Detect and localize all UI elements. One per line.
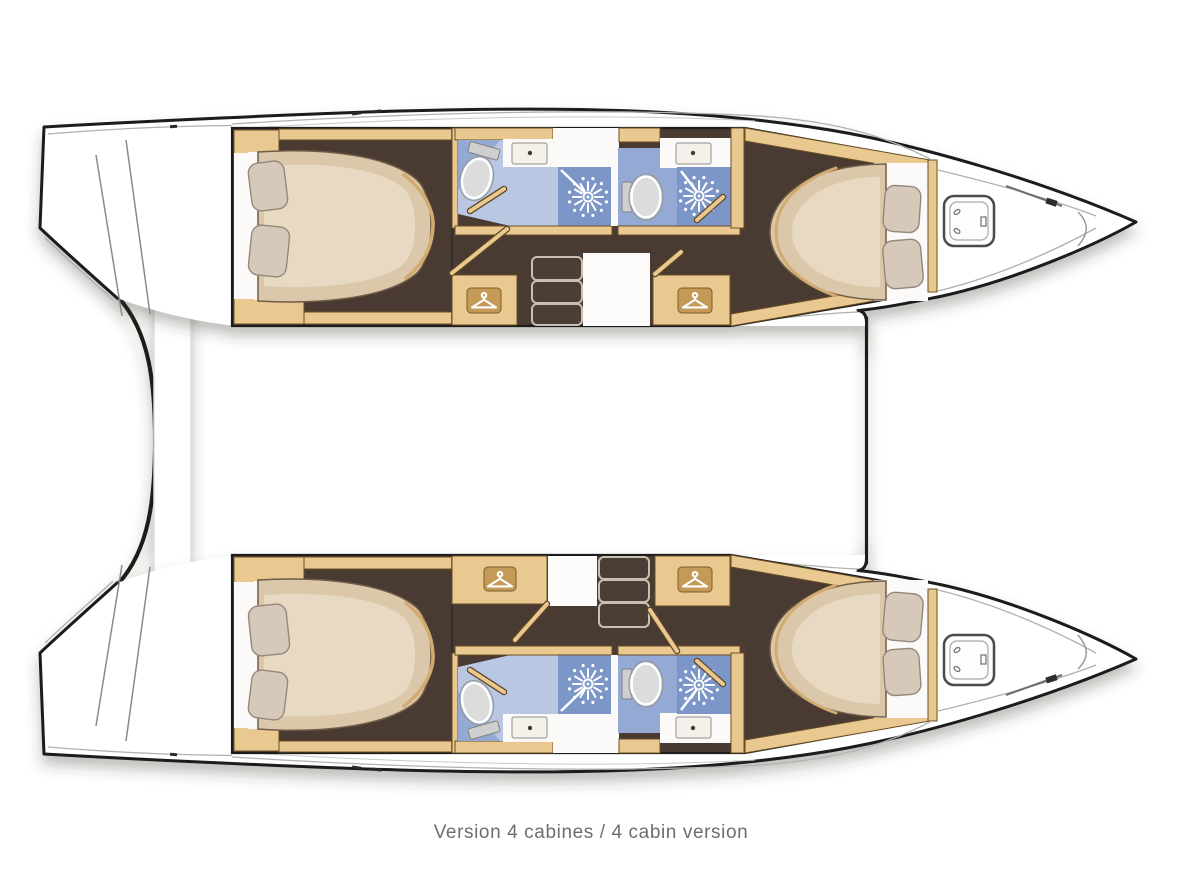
deck-plan-page: Version 4 cabines / 4 cabin version — [0, 0, 1182, 886]
aft-crossbeam — [118, 297, 155, 584]
center-platform — [154, 270, 191, 614]
catamaran-deck-plan — [0, 0, 1182, 886]
plan-caption: Version 4 cabines / 4 cabin version — [0, 822, 1182, 844]
companionway-stairs — [532, 257, 582, 325]
cabin-sole-landing — [583, 253, 650, 326]
companionway-stairs — [599, 557, 649, 627]
cabin-sole-landing — [548, 556, 597, 606]
